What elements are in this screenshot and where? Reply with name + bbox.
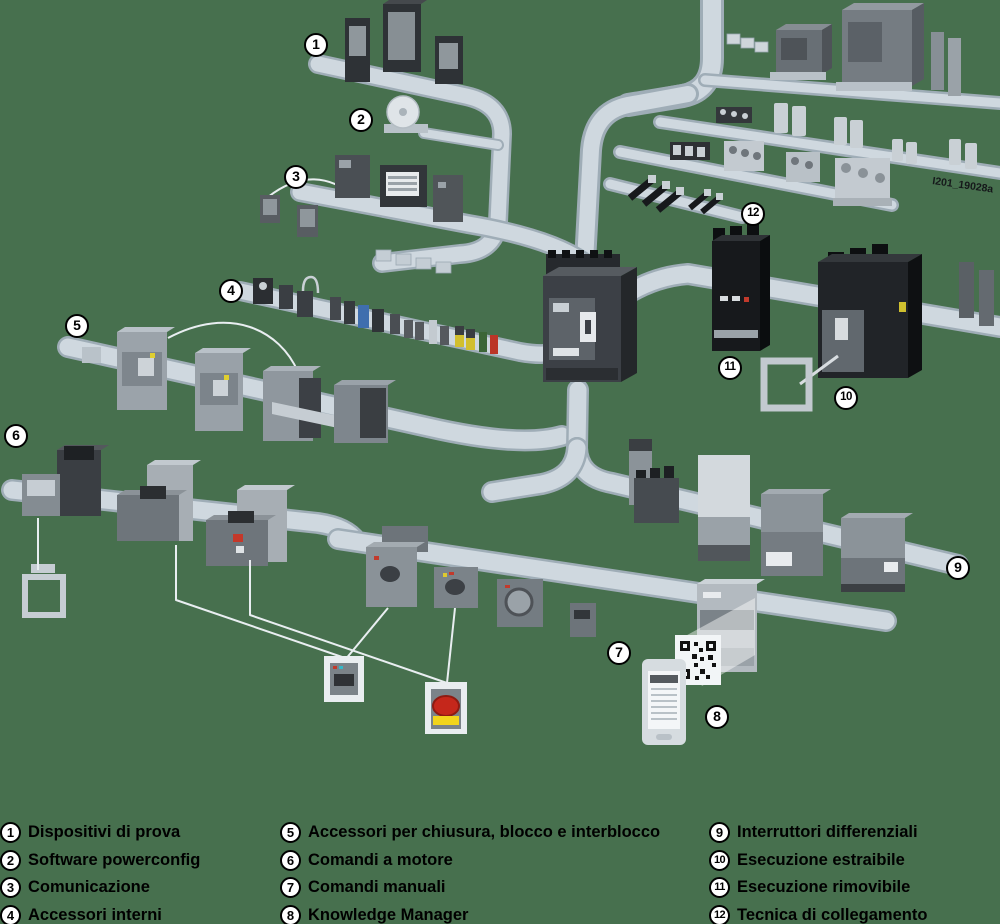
legend-badge-4: 4 [0, 905, 21, 924]
legend-label-11: Esecuzione rimovibile [737, 878, 910, 897]
legend-badge-8: 8 [280, 905, 301, 924]
legend-item-2: 2Software powerconfig [0, 850, 200, 871]
legend-badge-11: 11 [709, 877, 730, 898]
callout-10: 10 [834, 386, 858, 410]
legend-badge-9: 9 [709, 822, 730, 843]
legend-item-8: 8Knowledge Manager [280, 905, 660, 924]
legend-label-6: Comandi a motore [308, 851, 453, 870]
legend-col-3: 9Interruttori differenziali10Esecuzione … [709, 822, 927, 924]
legend-item-5: 5Accessori per chiusura, blocco e interb… [280, 822, 660, 843]
legend-label-9: Interruttori differenziali [737, 823, 918, 842]
diagram-canvas: I201_19028a 123456789101112 1Dispositivi… [0, 0, 1000, 924]
legend-badge-5: 5 [280, 822, 301, 843]
legend-label-3: Comunicazione [28, 878, 150, 897]
legend-badge-1: 1 [0, 822, 21, 843]
legend-label-2: Software powerconfig [28, 851, 200, 870]
legend-label-5: Accessori per chiusura, blocco e interbl… [308, 823, 660, 842]
legend-badge-6: 6 [280, 850, 301, 871]
legend-badge-10: 10 [709, 850, 730, 871]
legend-label-8: Knowledge Manager [308, 906, 468, 924]
callout-1: 1 [304, 33, 328, 57]
legend-item-11: 11Esecuzione rimovibile [709, 877, 927, 898]
legend-item-10: 10Esecuzione estraibile [709, 850, 927, 871]
callout-8: 8 [705, 705, 729, 729]
legend-label-10: Esecuzione estraibile [737, 851, 905, 870]
callout-layer: 123456789101112 [0, 0, 1000, 810]
legend-badge-2: 2 [0, 850, 21, 871]
callout-2: 2 [349, 108, 373, 132]
callout-11: 11 [718, 356, 742, 380]
legend-item-12: 12Tecnica di collegamento [709, 905, 927, 924]
callout-4: 4 [219, 279, 243, 303]
callout-6: 6 [4, 424, 28, 448]
legend-item-7: 7Comandi manuali [280, 877, 660, 898]
callout-7: 7 [607, 641, 631, 665]
legend-item-9: 9Interruttori differenziali [709, 822, 927, 843]
legend-item-3: 3Comunicazione [0, 877, 200, 898]
legend-badge-3: 3 [0, 877, 21, 898]
legend-badge-7: 7 [280, 877, 301, 898]
legend-badge-12: 12 [709, 905, 730, 924]
callout-12: 12 [741, 202, 765, 226]
callout-5: 5 [65, 314, 89, 338]
legend-item-4: 4Accessori interni [0, 905, 200, 924]
legend-item-6: 6Comandi a motore [280, 850, 660, 871]
legend-col-2: 5Accessori per chiusura, blocco e interb… [280, 822, 660, 924]
legend-label-4: Accessori interni [28, 906, 162, 924]
legend-label-7: Comandi manuali [308, 878, 446, 897]
legend-col-1: 1Dispositivi di prova2Software powerconf… [0, 822, 200, 924]
callout-9: 9 [946, 556, 970, 580]
legend-label-12: Tecnica di collegamento [737, 906, 927, 924]
callout-3: 3 [284, 165, 308, 189]
legend-label-1: Dispositivi di prova [28, 823, 180, 842]
legend-item-1: 1Dispositivi di prova [0, 822, 200, 843]
